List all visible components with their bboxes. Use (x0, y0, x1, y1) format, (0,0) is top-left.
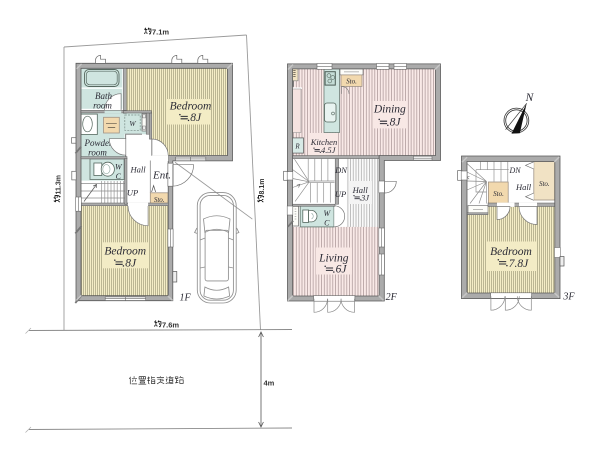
svg-text:3J: 3J (360, 193, 370, 203)
svg-text:1F: 1F (180, 292, 192, 303)
svg-text:3F: 3F (562, 292, 575, 303)
svg-text:4.5J: 4.5J (321, 145, 337, 155)
svg-text:4m: 4m (264, 379, 275, 388)
svg-text:8J: 8J (390, 117, 402, 129)
svg-text:6J: 6J (336, 263, 348, 275)
svg-text:UP: UP (127, 187, 138, 197)
svg-text:7.8J: 7.8J (509, 258, 529, 270)
svg-text:Dining: Dining (373, 103, 406, 115)
svg-text:Hall: Hall (129, 165, 146, 175)
svg-text:Ent.: Ent. (152, 170, 171, 182)
svg-text:Bedroom: Bedroom (104, 246, 146, 258)
svg-text:Bedroom: Bedroom (490, 246, 532, 258)
svg-text:DN: DN (334, 165, 348, 175)
svg-text:C: C (116, 172, 122, 181)
svg-text:DN: DN (508, 166, 521, 175)
svg-text:room: room (93, 101, 112, 111)
svg-text:Bath: Bath (95, 91, 112, 101)
svg-text:UP: UP (335, 189, 346, 199)
svg-text:8J: 8J (125, 257, 137, 269)
svg-text:11.3m: 11.3m (56, 175, 63, 194)
svg-text:8J: 8J (190, 112, 202, 124)
svg-text:Bedroom: Bedroom (170, 101, 212, 113)
svg-text:7.1m: 7.1m (152, 28, 169, 37)
svg-text:Sto.: Sto. (493, 190, 504, 198)
svg-text:C: C (324, 218, 330, 227)
svg-text:N: N (525, 92, 535, 104)
svg-text:W: W (129, 119, 136, 128)
svg-text:room: room (88, 148, 107, 158)
svg-text:Sto.: Sto. (539, 180, 550, 188)
svg-text:Hall: Hall (515, 182, 532, 192)
svg-text:8.1m: 8.1m (259, 179, 266, 195)
svg-text:2F: 2F (386, 292, 398, 303)
svg-text:Sto.: Sto. (346, 78, 357, 86)
svg-text:Powder: Powder (84, 138, 113, 148)
svg-text:Sto.: Sto. (154, 196, 165, 204)
svg-text:7.6m: 7.6m (162, 320, 179, 329)
svg-text:R: R (294, 143, 300, 151)
